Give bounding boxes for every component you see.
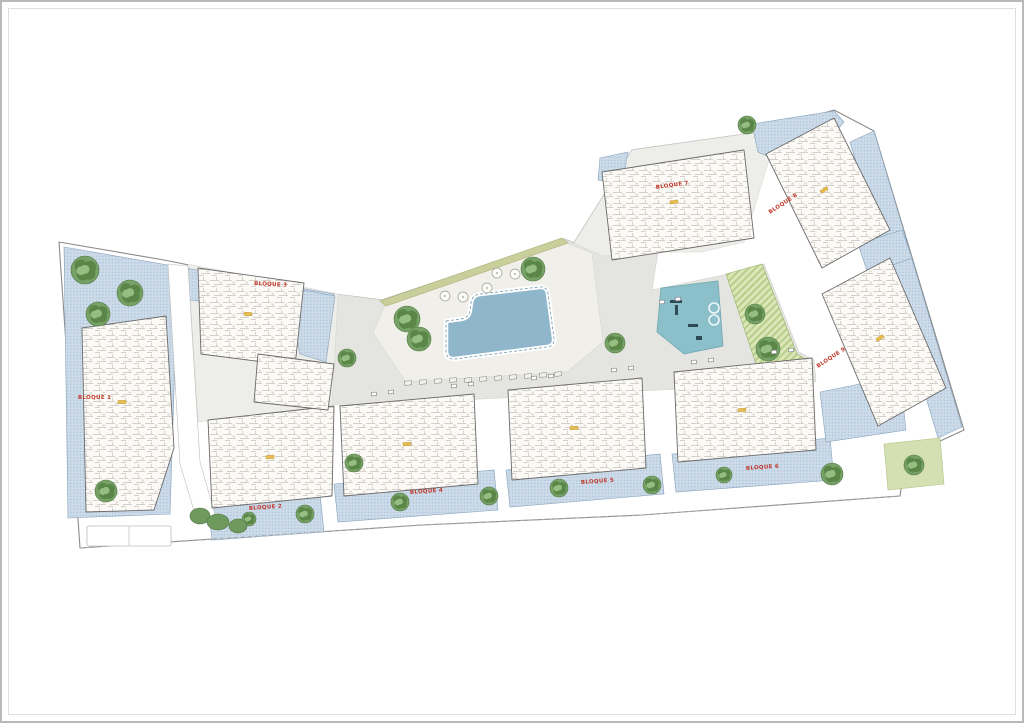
furniture-mark [388, 390, 393, 394]
sun-lounger [554, 372, 561, 377]
tree-highlight [395, 500, 401, 506]
shrub [229, 519, 247, 533]
furniture-mark [708, 358, 713, 362]
tree [716, 467, 732, 483]
furniture-mark [611, 368, 616, 372]
tree-highlight [245, 517, 249, 521]
stair-core-mark [738, 408, 746, 412]
tree-highlight [91, 311, 99, 319]
tree [117, 280, 143, 306]
furniture-mark [531, 376, 536, 380]
parasol-pole [496, 272, 498, 274]
sun-lounger [449, 378, 456, 383]
furniture-mark [675, 297, 680, 301]
tree [756, 337, 780, 361]
tree-highlight [719, 473, 724, 478]
tree-highlight [554, 486, 560, 492]
furniture-mark [691, 360, 696, 364]
parasol-icon [458, 292, 468, 302]
sun-lounger [509, 375, 516, 380]
parasol-icon [482, 283, 492, 293]
tree-highlight [749, 311, 755, 317]
tree-highlight [526, 266, 534, 274]
tree [296, 505, 314, 523]
tree-highlight [349, 461, 355, 467]
tree-highlight [484, 494, 490, 500]
furniture-mark [771, 350, 776, 354]
tree [521, 257, 545, 281]
tree-highlight [908, 462, 914, 468]
tree [550, 479, 568, 497]
tree-highlight [99, 488, 106, 495]
furniture-mark [788, 348, 793, 352]
play-equipment-mark [675, 305, 678, 315]
tree [904, 455, 924, 475]
tree-highlight [399, 315, 407, 323]
sun-lounger [479, 377, 486, 382]
tree-highlight [77, 266, 86, 275]
tree-highlight [742, 123, 748, 129]
stair-core-mark [266, 455, 274, 459]
furniture-mark [371, 392, 376, 396]
tree [643, 476, 661, 494]
sun-lounger [524, 374, 531, 379]
furniture-mark [548, 374, 553, 378]
tree [480, 487, 498, 505]
sun-lounger [419, 380, 426, 385]
tree-highlight [122, 289, 130, 297]
parasol-pole [444, 295, 446, 297]
building-bloque-3 [198, 268, 304, 366]
site-plan-drawing: BLOQUE 1BLOQUE 2BLOQUE 3BLOQUE 4BLOQUE 5… [2, 2, 1024, 723]
building-bloque-1 [82, 316, 174, 512]
furniture-mark [451, 384, 456, 388]
parasol-icon [510, 269, 520, 279]
shrub [207, 514, 229, 530]
stair-core-mark [118, 400, 126, 403]
tree [407, 327, 431, 351]
sun-lounger [494, 376, 501, 381]
tree [745, 304, 765, 324]
sun-lounger [404, 381, 411, 386]
tree [71, 256, 99, 284]
parasol-icon [492, 268, 502, 278]
sun-lounger [464, 378, 471, 383]
tree-highlight [609, 340, 615, 346]
tree-highlight [647, 483, 653, 489]
furniture-mark [628, 366, 633, 370]
parasol-pole [514, 273, 516, 275]
tree-highlight [825, 471, 832, 478]
tree [821, 463, 843, 485]
tree [86, 302, 110, 326]
sun-lounger [539, 373, 546, 378]
drawing-sheet: BLOQUE 1BLOQUE 2BLOQUE 3BLOQUE 4BLOQUE 5… [0, 0, 1024, 723]
tree [338, 349, 356, 367]
stair-core-mark [244, 312, 252, 316]
tree [345, 454, 363, 472]
parasol-icon [440, 291, 450, 301]
furniture-mark [468, 382, 473, 386]
tree [738, 116, 756, 134]
play-equipment-mark [688, 324, 698, 327]
stair-core-mark [570, 426, 578, 430]
tree [95, 480, 117, 502]
tree [391, 493, 409, 511]
tree-highlight [300, 512, 306, 518]
play-equipment-mark [696, 336, 702, 340]
tree-highlight [342, 356, 348, 362]
parasol-pole [462, 296, 464, 298]
sun-lounger [434, 379, 441, 384]
furniture-mark [659, 300, 664, 304]
tree [605, 333, 625, 353]
building-bloque-3-annex [254, 354, 334, 410]
tree-highlight [412, 336, 420, 344]
parasol-pole [486, 287, 488, 289]
stair-core-mark [403, 442, 411, 446]
bloque-label: BLOQUE 1 [78, 395, 111, 401]
tree-highlight [761, 346, 769, 354]
